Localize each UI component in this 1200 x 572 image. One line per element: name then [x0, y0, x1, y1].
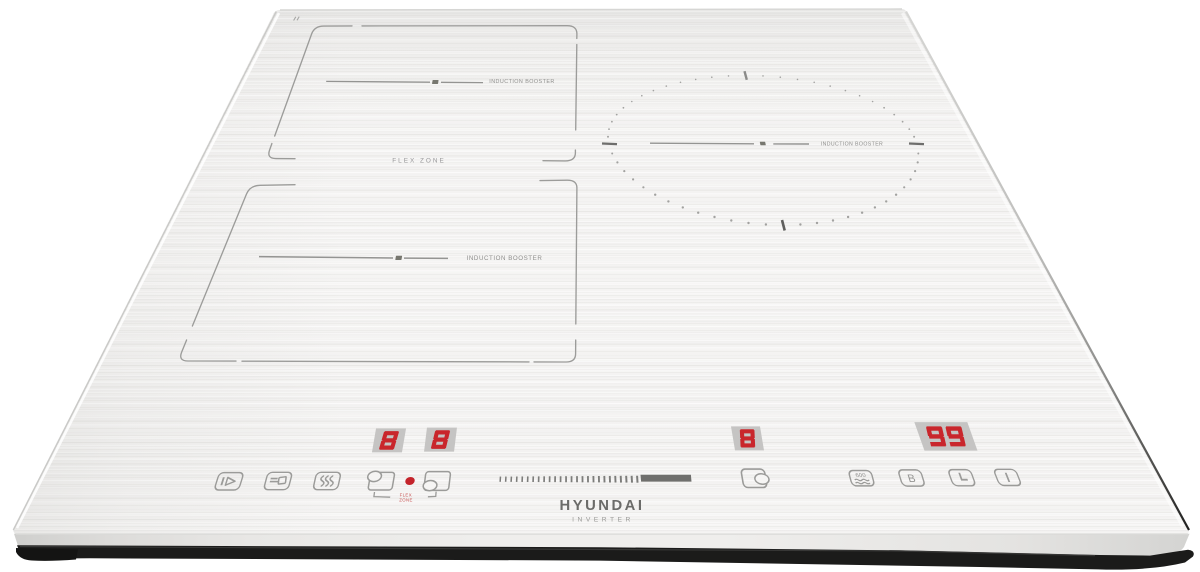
svg-text:ZONE: ZONE: [399, 497, 413, 502]
svg-text:INVERTER: INVERTER: [572, 516, 634, 523]
svg-text:FLEX ZONE: FLEX ZONE: [392, 157, 446, 164]
svg-text:600: 600: [855, 473, 867, 479]
svg-text:HYUNDAI: HYUNDAI: [560, 498, 645, 514]
svg-text:INDUCTION BOOSTER: INDUCTION BOOSTER: [489, 79, 554, 85]
svg-text:INDUCTION BOOSTER: INDUCTION BOOSTER: [821, 142, 883, 148]
svg-text:INDUCTION BOOSTER: INDUCTION BOOSTER: [467, 255, 543, 262]
